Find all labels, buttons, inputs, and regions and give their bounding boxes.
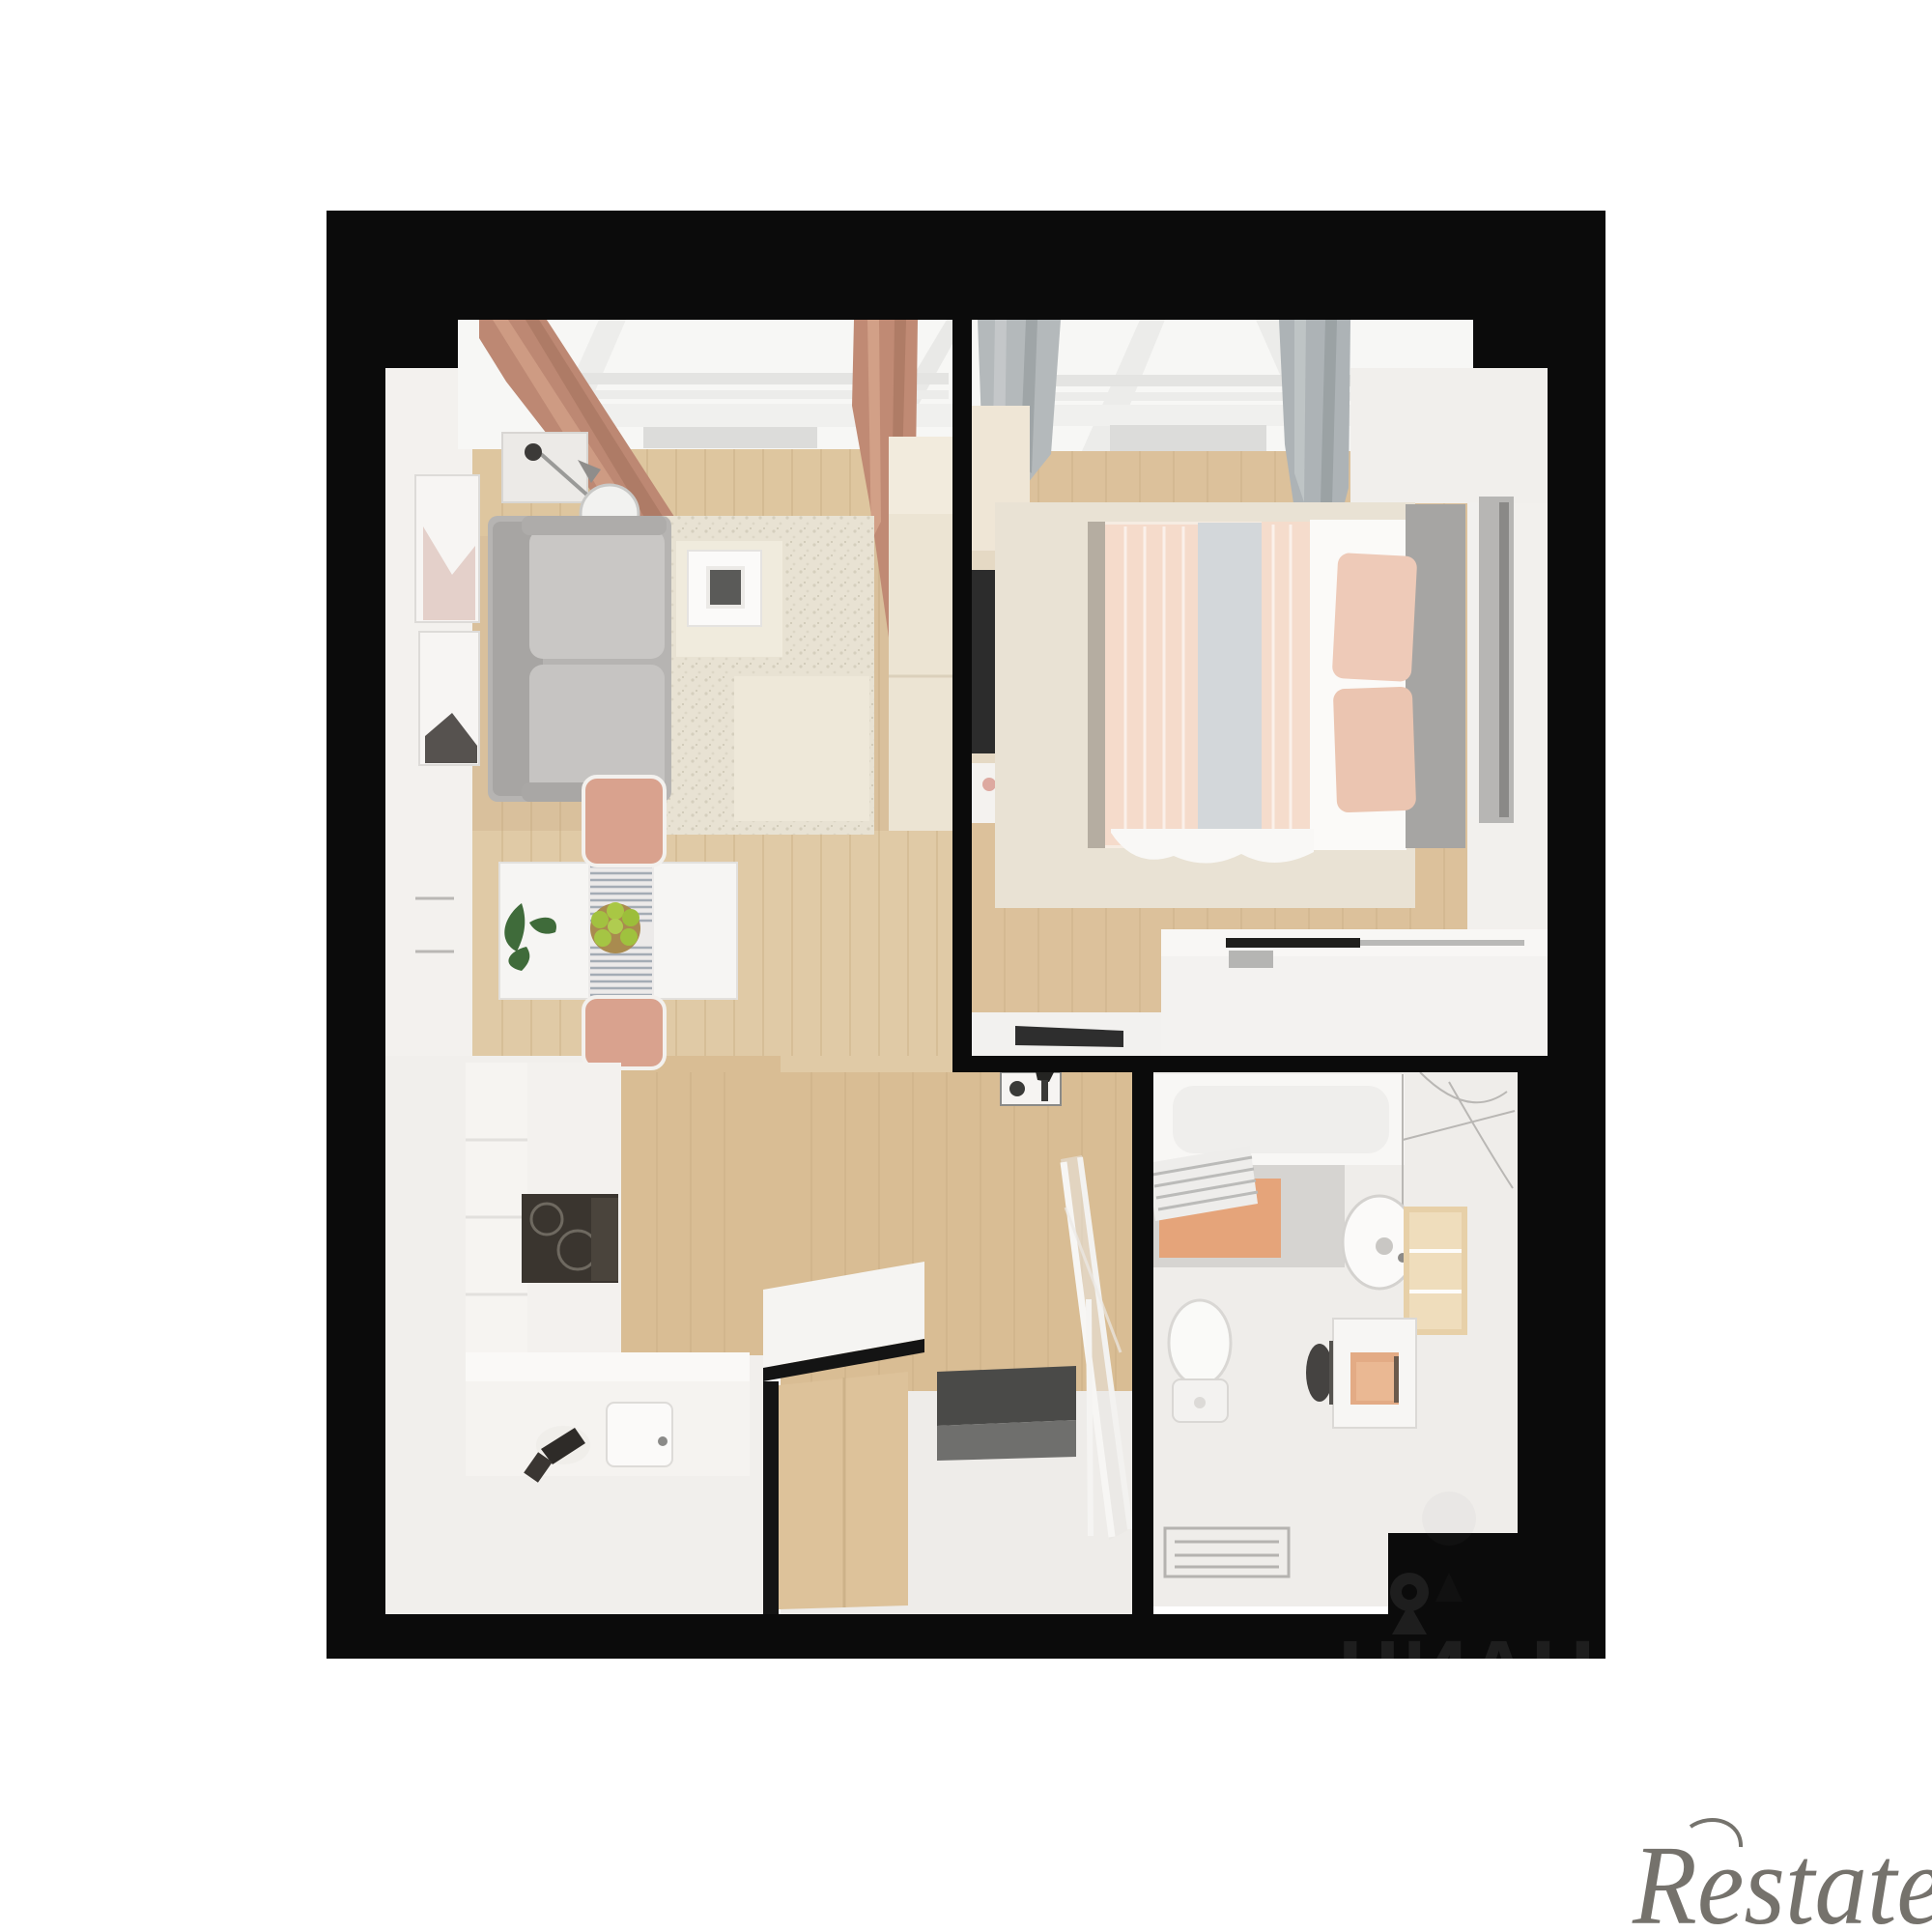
svg-text:Restate: Restate	[1632, 1822, 1932, 1932]
